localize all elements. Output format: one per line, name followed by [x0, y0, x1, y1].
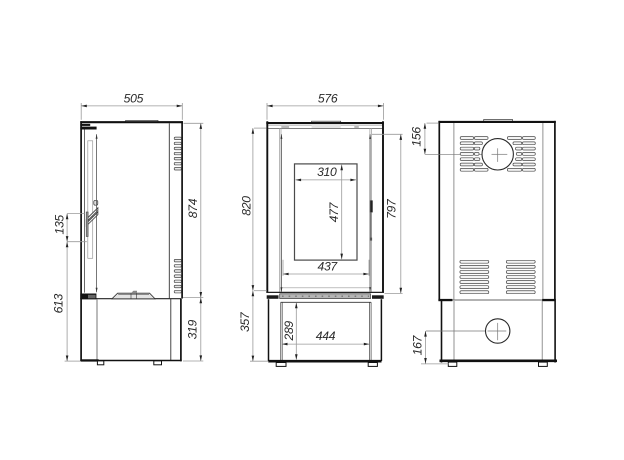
svg-text:135: 135 [53, 215, 67, 235]
svg-text:156: 156 [410, 127, 424, 147]
svg-text:797: 797 [384, 198, 398, 219]
svg-text:820: 820 [239, 196, 253, 216]
svg-text:357: 357 [238, 311, 252, 332]
svg-text:505: 505 [124, 91, 144, 105]
svg-text:576: 576 [318, 91, 338, 105]
svg-text:289: 289 [282, 321, 296, 342]
svg-text:167: 167 [410, 334, 424, 355]
svg-text:437: 437 [317, 260, 338, 274]
svg-text:874: 874 [186, 198, 200, 218]
svg-text:477: 477 [327, 201, 341, 222]
svg-text:613: 613 [52, 293, 66, 313]
svg-text:444: 444 [316, 329, 336, 343]
svg-text:310: 310 [317, 165, 337, 179]
svg-text:319: 319 [186, 319, 200, 339]
